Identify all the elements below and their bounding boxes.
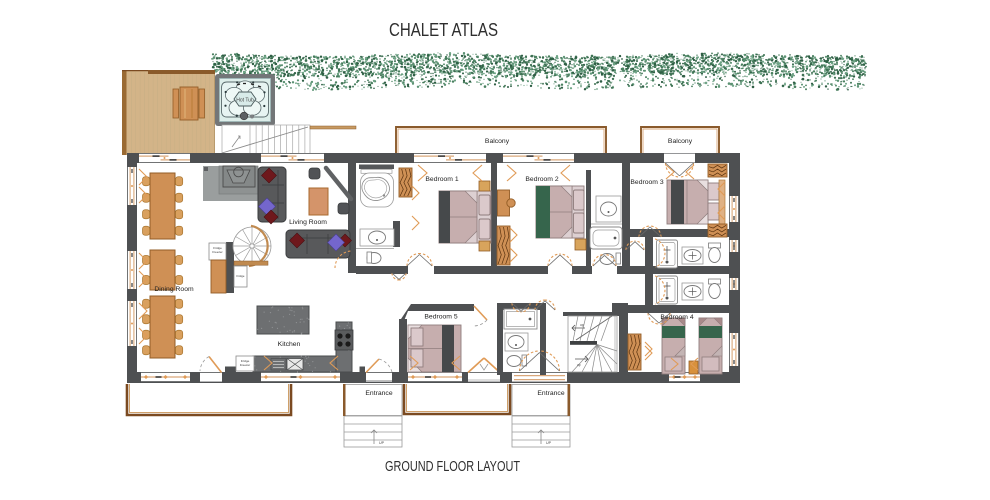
svg-text:UP: UP (379, 441, 385, 445)
svg-text:Balcony: Balcony (485, 138, 510, 145)
svg-text:Bedroom 1: Bedroom 1 (425, 176, 458, 183)
svg-text:Entrance: Entrance (365, 390, 392, 397)
svg-text:Kitchen: Kitchen (278, 341, 301, 348)
svg-text:up: up (577, 363, 581, 367)
svg-text:Living Room: Living Room (289, 219, 327, 226)
svg-text:Bedroom 5: Bedroom 5 (424, 314, 457, 321)
svg-text:Balcony: Balcony (668, 138, 693, 145)
svg-text:up: up (580, 323, 584, 327)
svg-text:Freezer: Freezer (212, 250, 222, 254)
svg-text:Bedroom 3: Bedroom 3 (630, 179, 663, 186)
svg-text:Bedroom 2: Bedroom 2 (525, 176, 558, 183)
svg-text:GROUND FLOOR LAYOUT: GROUND FLOOR LAYOUT (385, 458, 520, 475)
svg-text:Freezer: Freezer (240, 363, 250, 367)
svg-text:Hot Tub: Hot Tub (236, 98, 254, 104)
svg-text:Dining Room: Dining Room (154, 286, 194, 293)
svg-text:UP: UP (546, 441, 552, 445)
svg-text:Fridge: Fridge (237, 274, 245, 278)
svg-text:Entrance: Entrance (537, 390, 564, 397)
svg-text:CHALET ATLAS: CHALET ATLAS (389, 20, 498, 40)
